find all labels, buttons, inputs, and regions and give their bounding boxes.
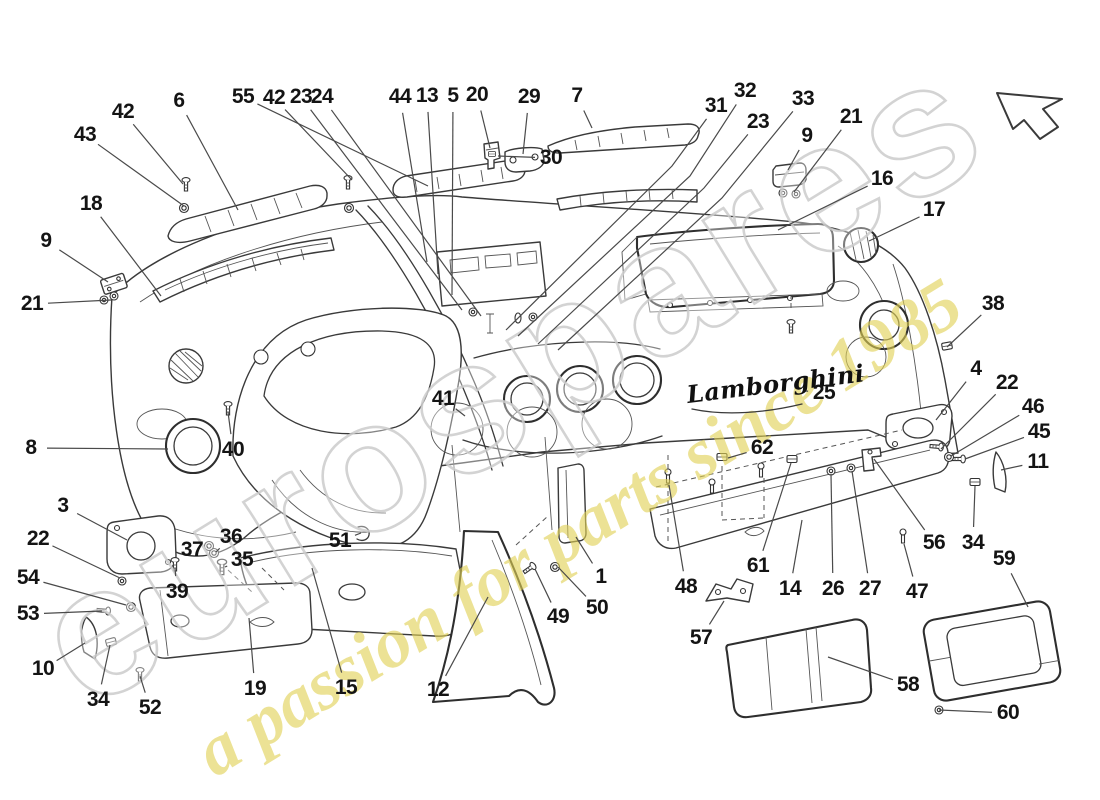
callout-label-59: 59 — [993, 548, 1015, 569]
callout-label-22: 22 — [27, 528, 49, 549]
callout-label-45: 45 — [1028, 421, 1050, 442]
callout-label-32: 32 — [734, 80, 756, 101]
callout-label-31: 31 — [705, 95, 727, 116]
callout-label-57: 57 — [690, 627, 712, 648]
callout-label-21: 21 — [21, 293, 43, 314]
callout-label-54: 54 — [17, 567, 39, 588]
callout-label-50: 50 — [586, 597, 608, 618]
callout-label-1: 1 — [595, 566, 606, 587]
callout-label-62: 62 — [751, 437, 773, 458]
callout-label-56: 56 — [923, 532, 945, 553]
callout-label-41: 41 — [432, 388, 454, 409]
callout-label-37: 37 — [181, 539, 203, 560]
callout-label-9: 9 — [801, 125, 812, 146]
callout-label-40: 40 — [222, 439, 244, 460]
callout-label-47: 47 — [906, 581, 928, 602]
parts-diagram-page: eurospares a passion for parts since 198… — [0, 0, 1100, 800]
callout-label-38: 38 — [982, 293, 1004, 314]
callout-labels: 4243655422324441352029730313223339211617… — [0, 0, 1100, 800]
callout-label-29: 29 — [518, 86, 540, 107]
callout-label-16: 16 — [871, 168, 893, 189]
callout-label-26: 26 — [822, 578, 844, 599]
callout-label-58: 58 — [897, 674, 919, 695]
callout-label-23: 23 — [747, 111, 769, 132]
callout-label-19: 19 — [244, 678, 266, 699]
callout-label-13: 13 — [416, 85, 438, 106]
callout-label-10: 10 — [32, 658, 54, 679]
callout-label-12: 12 — [427, 679, 449, 700]
callout-label-34: 34 — [962, 532, 984, 553]
callout-label-35: 35 — [231, 549, 253, 570]
callout-label-24: 24 — [311, 86, 333, 107]
callout-label-9: 9 — [40, 230, 51, 251]
callout-label-18: 18 — [80, 193, 102, 214]
callout-label-42: 42 — [112, 101, 134, 122]
callout-label-17: 17 — [923, 199, 945, 220]
callout-label-48: 48 — [675, 576, 697, 597]
callout-label-5: 5 — [447, 85, 458, 106]
callout-label-60: 60 — [997, 702, 1019, 723]
callout-label-3: 3 — [57, 495, 68, 516]
callout-label-43: 43 — [74, 124, 96, 145]
callout-label-7: 7 — [571, 85, 582, 106]
callout-label-51: 51 — [329, 530, 351, 551]
callout-label-34: 34 — [87, 689, 109, 710]
callout-label-49: 49 — [547, 606, 569, 627]
callout-label-6: 6 — [173, 90, 184, 111]
callout-label-55: 55 — [232, 86, 254, 107]
callout-label-53: 53 — [17, 603, 39, 624]
callout-label-23: 23 — [290, 86, 312, 107]
callout-label-21: 21 — [840, 106, 862, 127]
callout-label-52: 52 — [139, 697, 161, 718]
callout-label-11: 11 — [1027, 451, 1048, 472]
callout-label-44: 44 — [389, 86, 411, 107]
callout-label-36: 36 — [220, 526, 242, 547]
callout-label-15: 15 — [335, 677, 357, 698]
callout-label-14: 14 — [779, 578, 801, 599]
callout-label-42: 42 — [263, 87, 285, 108]
callout-label-25: 25 — [813, 382, 835, 403]
callout-label-46: 46 — [1022, 396, 1044, 417]
callout-label-4: 4 — [970, 358, 981, 379]
callout-label-39: 39 — [166, 581, 188, 602]
callout-label-33: 33 — [792, 88, 814, 109]
callout-label-20: 20 — [466, 84, 488, 105]
callout-label-22: 22 — [996, 372, 1018, 393]
callout-label-30: 30 — [540, 147, 562, 168]
callout-label-61: 61 — [747, 555, 769, 576]
callout-label-27: 27 — [859, 578, 881, 599]
callout-label-8: 8 — [25, 437, 36, 458]
